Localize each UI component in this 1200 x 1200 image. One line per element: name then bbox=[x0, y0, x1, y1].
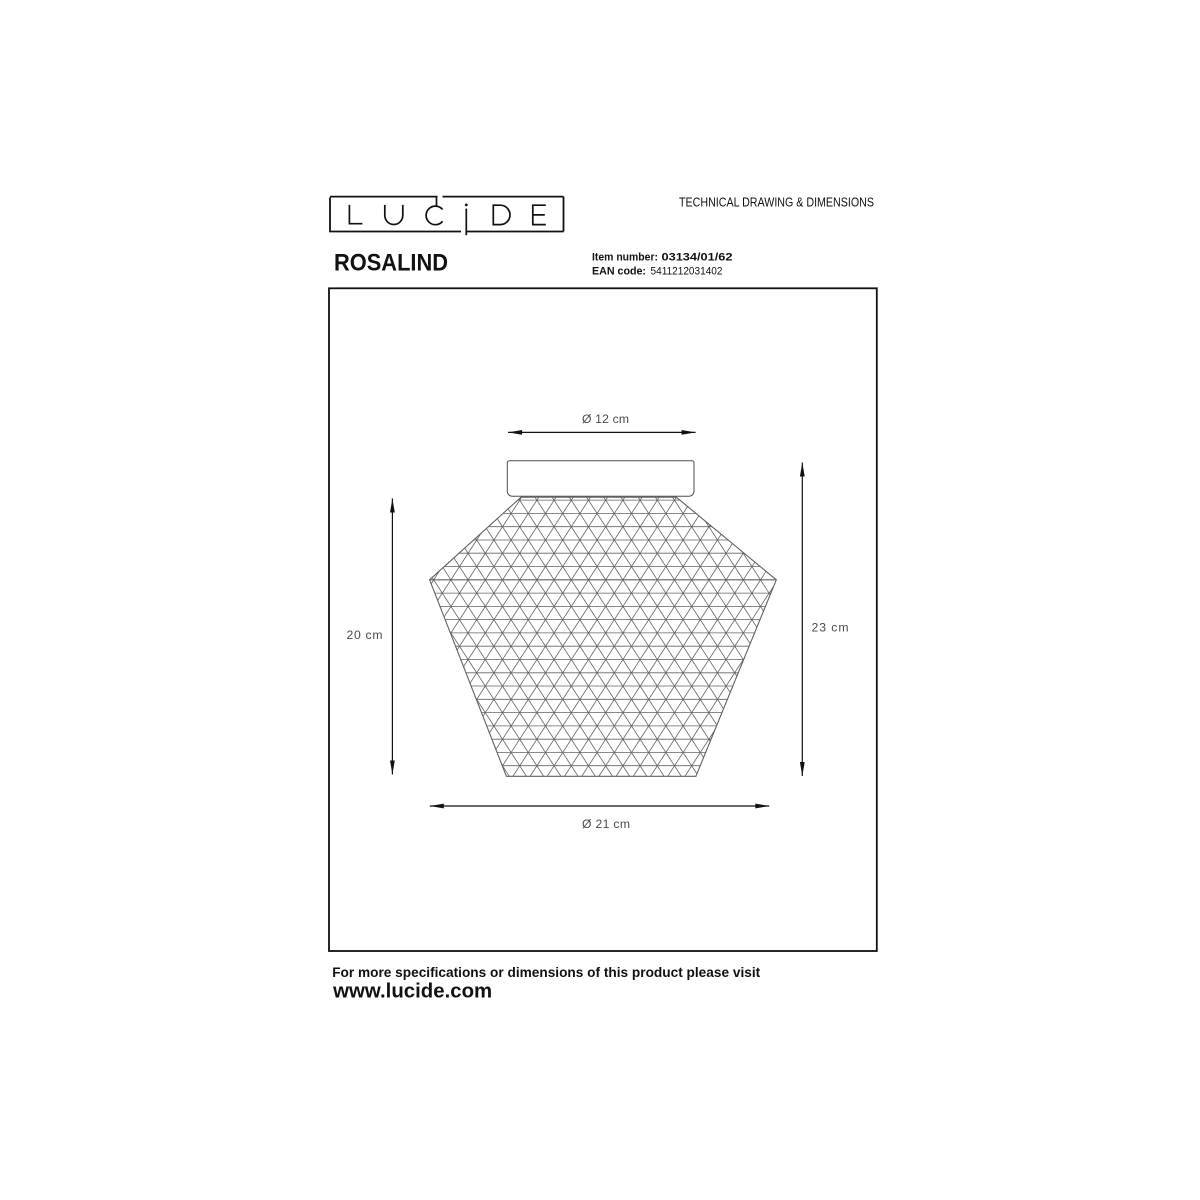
svg-text:www.lucide.com: www.lucide.com bbox=[332, 981, 492, 1003]
svg-text:TECHNICAL DRAWING & DIMENSIONS: TECHNICAL DRAWING & DIMENSIONS bbox=[679, 196, 874, 210]
svg-text:Ø 21 cm: Ø 21 cm bbox=[582, 817, 631, 831]
svg-text:5411212031402: 5411212031402 bbox=[651, 265, 723, 277]
svg-text:23 cm: 23 cm bbox=[812, 621, 850, 635]
svg-text:Item number:: Item number: bbox=[592, 251, 658, 263]
svg-text:ROSALIND: ROSALIND bbox=[334, 249, 448, 276]
svg-text:For more specifications or dim: For more specifications or dimensions of… bbox=[332, 964, 760, 980]
svg-text:20 cm: 20 cm bbox=[347, 628, 384, 642]
svg-text:03134/01/62: 03134/01/62 bbox=[662, 251, 733, 263]
svg-text:Ø 12 cm: Ø 12 cm bbox=[582, 412, 630, 426]
svg-text:EAN code:: EAN code: bbox=[592, 265, 646, 277]
